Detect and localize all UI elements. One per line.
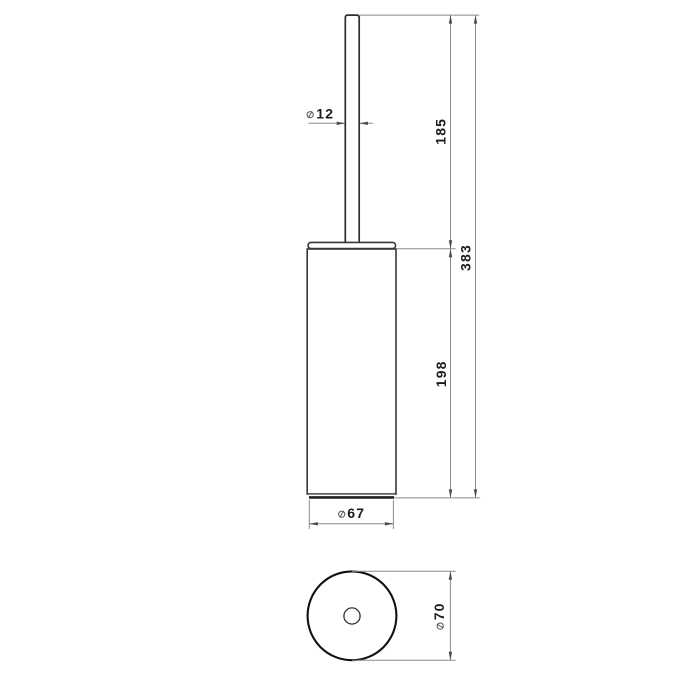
svg-text:70: 70: [431, 602, 447, 620]
svg-text:198: 198: [433, 360, 449, 387]
svg-text:12: 12: [316, 106, 334, 122]
svg-text:383: 383: [458, 244, 474, 271]
svg-text:185: 185: [433, 118, 449, 145]
svg-text:67: 67: [347, 505, 365, 521]
